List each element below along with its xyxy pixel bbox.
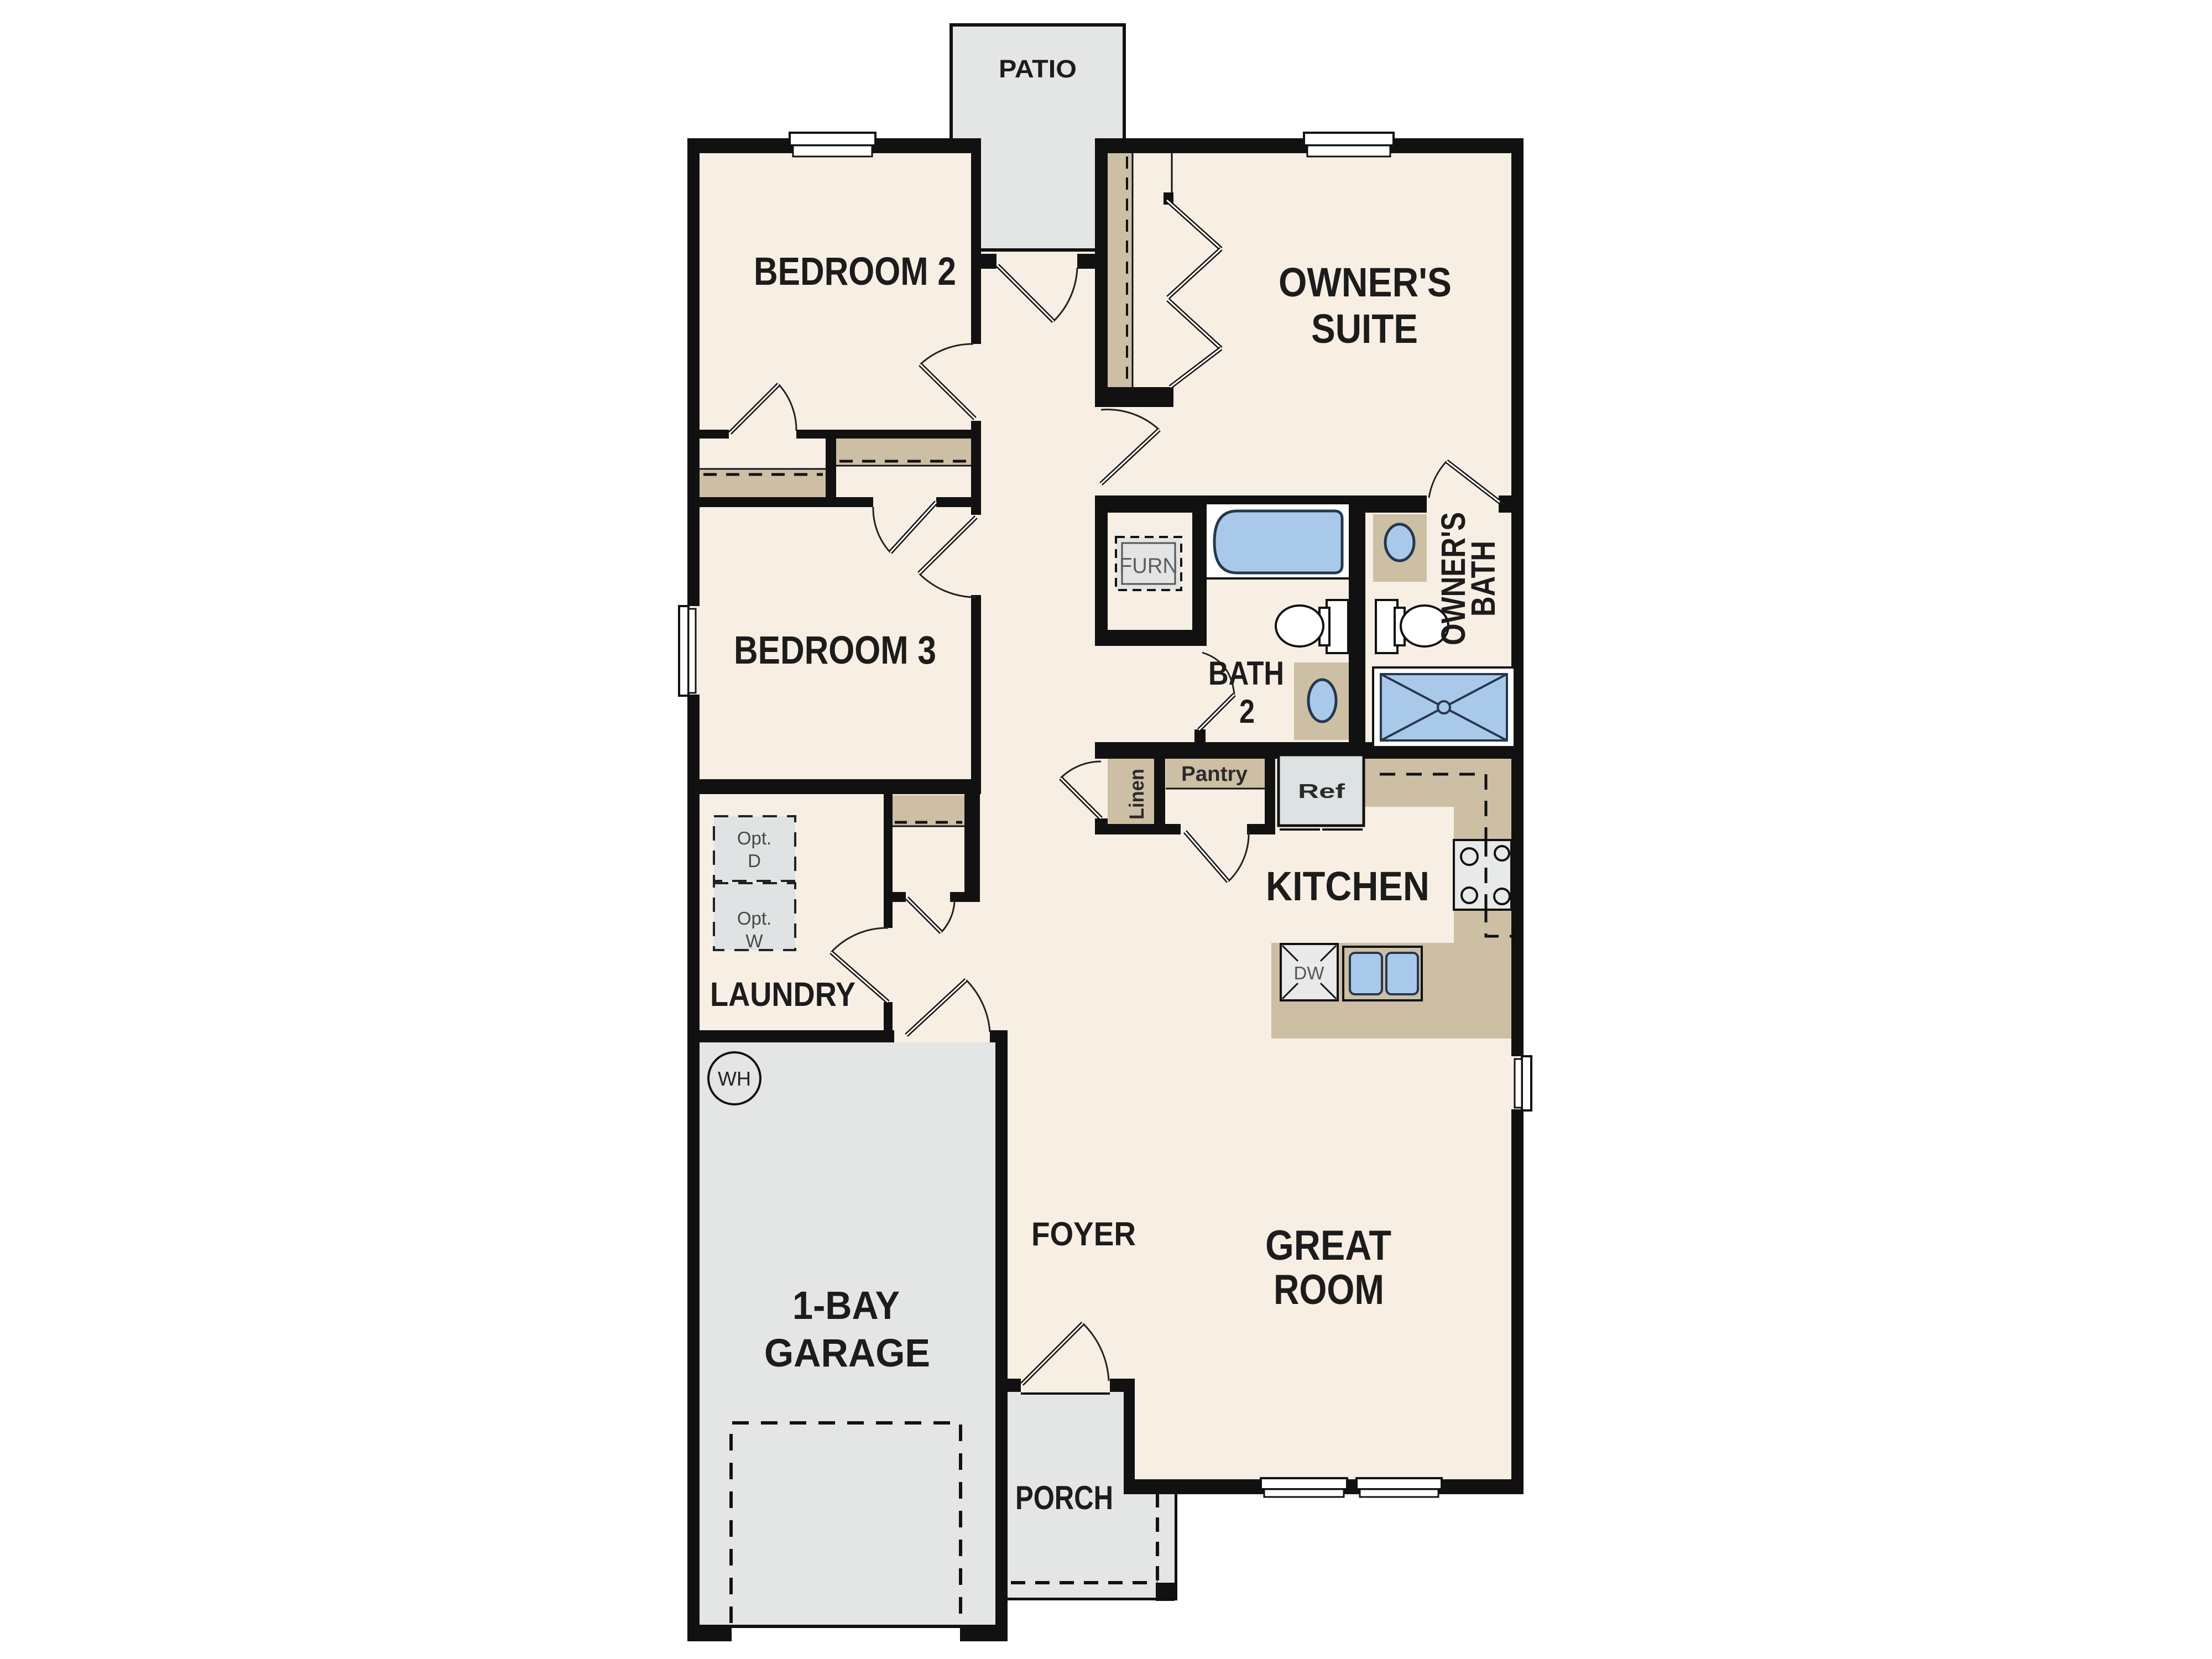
svg-text:LAUNDRY: LAUNDRY [710,975,855,1013]
svg-text:Linen: Linen [1125,769,1148,820]
svg-text:ROOM: ROOM [1274,1266,1384,1313]
svg-text:Opt.: Opt. [737,908,771,928]
svg-text:PORCH: PORCH [1015,1479,1113,1516]
svg-text:OWNER'S: OWNER'S [1279,259,1452,305]
svg-text:GREAT: GREAT [1265,1222,1391,1269]
svg-text:WH: WH [718,1067,751,1090]
svg-text:Opt.: Opt. [737,828,771,848]
svg-text:FOYER: FOYER [1031,1215,1136,1253]
svg-text:2: 2 [1239,693,1255,730]
svg-text:BATH: BATH [1464,541,1502,617]
svg-text:W: W [745,931,763,951]
svg-text:FURN: FURN [1119,554,1178,578]
svg-text:Ref: Ref [1298,780,1345,802]
svg-text:BATH: BATH [1208,655,1284,692]
svg-text:DW: DW [1294,963,1325,983]
svg-text:PATIO: PATIO [999,55,1077,83]
svg-text:BEDROOM 3: BEDROOM 3 [734,629,936,672]
svg-text:SUITE: SUITE [1311,306,1418,352]
svg-text:KITCHEN: KITCHEN [1266,863,1430,909]
svg-text:GARAGE: GARAGE [764,1332,930,1375]
svg-text:D: D [748,851,761,871]
svg-text:BEDROOM 2: BEDROOM 2 [754,250,956,294]
svg-text:1-BAY: 1-BAY [792,1284,900,1328]
svg-text:Pantry: Pantry [1181,763,1248,786]
